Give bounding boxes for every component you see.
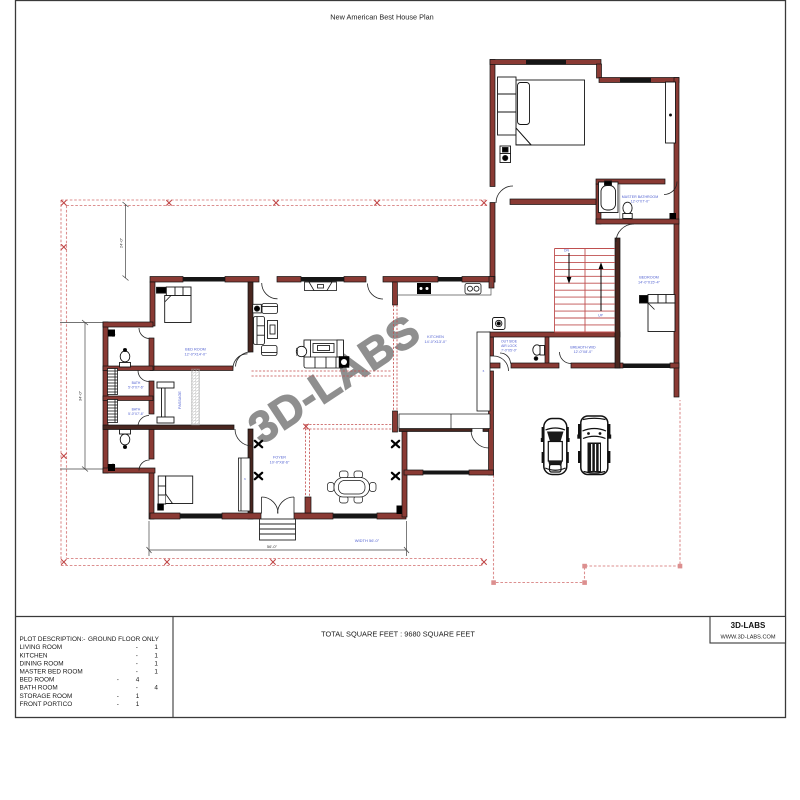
svg-text:3D-LABS: 3D-LABS [731, 621, 766, 630]
svg-text:STORAGE ROOM: STORAGE ROOM [20, 693, 73, 700]
svg-text:LIVING ROOM: LIVING ROOM [20, 644, 63, 651]
svg-text:1: 1 [154, 644, 158, 651]
svg-text:New American Best House Plan: New American Best House Plan [330, 13, 433, 22]
svg-text:DN: DN [564, 249, 569, 253]
svg-text:MASTER BATHROOM: MASTER BATHROOM [622, 195, 658, 199]
svg-text:4: 4 [154, 685, 158, 692]
svg-text:10'-0"X8'-6": 10'-0"X8'-6" [270, 460, 290, 464]
svg-text:PLOT DESCRIPTION:-: PLOT DESCRIPTION:- [20, 636, 86, 643]
svg-text:KITCHEN: KITCHEN [20, 652, 48, 659]
svg-text:14'-0"X13'-0": 14'-0"X13'-0" [425, 340, 448, 344]
svg-text:BED ROOM: BED ROOM [185, 348, 206, 352]
svg-text:24'-0": 24'-0" [119, 237, 124, 248]
svg-text:-: - [136, 685, 138, 692]
svg-text:OUT SIDE: OUT SIDE [501, 340, 518, 344]
svg-text:WIDTH 56'-0": WIDTH 56'-0" [355, 538, 380, 543]
svg-text:WWW.3D-LABS.COM: WWW.3D-LABS.COM [720, 635, 775, 641]
svg-text:-: - [117, 701, 119, 708]
svg-text:56'-0": 56'-0" [267, 544, 278, 549]
svg-text:12'-0"X8'-0": 12'-0"X8'-0" [574, 350, 593, 354]
svg-text:MASTER BED ROOM: MASTER BED ROOM [20, 669, 83, 676]
svg-text:14'-0"X15'-4": 14'-0"X15'-4" [638, 280, 661, 284]
svg-text:BATH: BATH [132, 408, 141, 412]
svg-text:BED ROOM: BED ROOM [20, 677, 55, 684]
svg-text:-: - [136, 644, 138, 651]
svg-text:1: 1 [154, 660, 158, 667]
svg-text:12'-0"X7'-0": 12'-0"X7'-0" [631, 200, 650, 204]
svg-text:-: - [117, 693, 119, 700]
svg-text:5'-0"X7'-6": 5'-0"X7'-6" [128, 385, 145, 389]
svg-text:-: - [136, 660, 138, 667]
svg-text:1: 1 [154, 669, 158, 676]
svg-text:AIR LOCK: AIR LOCK [501, 344, 518, 348]
svg-text:5'-0"X7'-6": 5'-0"X7'-6" [128, 412, 145, 416]
svg-text:FOYER: FOYER [273, 456, 286, 460]
svg-text:-: - [136, 652, 138, 659]
svg-text:BEDROOM: BEDROOM [639, 276, 659, 280]
svg-text:1: 1 [136, 693, 140, 700]
svg-text:BATH ROOM: BATH ROOM [20, 685, 58, 692]
svg-text:-: - [117, 677, 119, 684]
svg-text:TOTAL SQUARE FEET : 9680 SQUAR: TOTAL SQUARE FEET : 9680 SQUARE FEET [321, 630, 475, 639]
svg-text:7'-0"X5'-0": 7'-0"X5'-0" [501, 348, 518, 352]
svg-text:-: - [136, 669, 138, 676]
svg-text:BATH: BATH [132, 381, 141, 385]
svg-text:4: 4 [136, 677, 140, 684]
svg-text:34'-0": 34'-0" [78, 390, 83, 401]
svg-text:DINING ROOM: DINING ROOM [20, 660, 64, 667]
svg-text:12'-0"X14'-0": 12'-0"X14'-0" [185, 352, 208, 356]
svg-text:KITCHEN: KITCHEN [427, 335, 444, 339]
svg-text:BREADTH WID: BREADTH WID [570, 346, 596, 350]
svg-text:UP: UP [598, 314, 603, 318]
svg-text:PASSAGE: PASSAGE [178, 391, 182, 409]
svg-text:1: 1 [154, 652, 158, 659]
svg-text:1: 1 [136, 701, 140, 708]
svg-text:FRONT PORTICO: FRONT PORTICO [20, 701, 73, 708]
svg-text:GROUND FLOOR ONLY: GROUND FLOOR ONLY [88, 636, 160, 643]
